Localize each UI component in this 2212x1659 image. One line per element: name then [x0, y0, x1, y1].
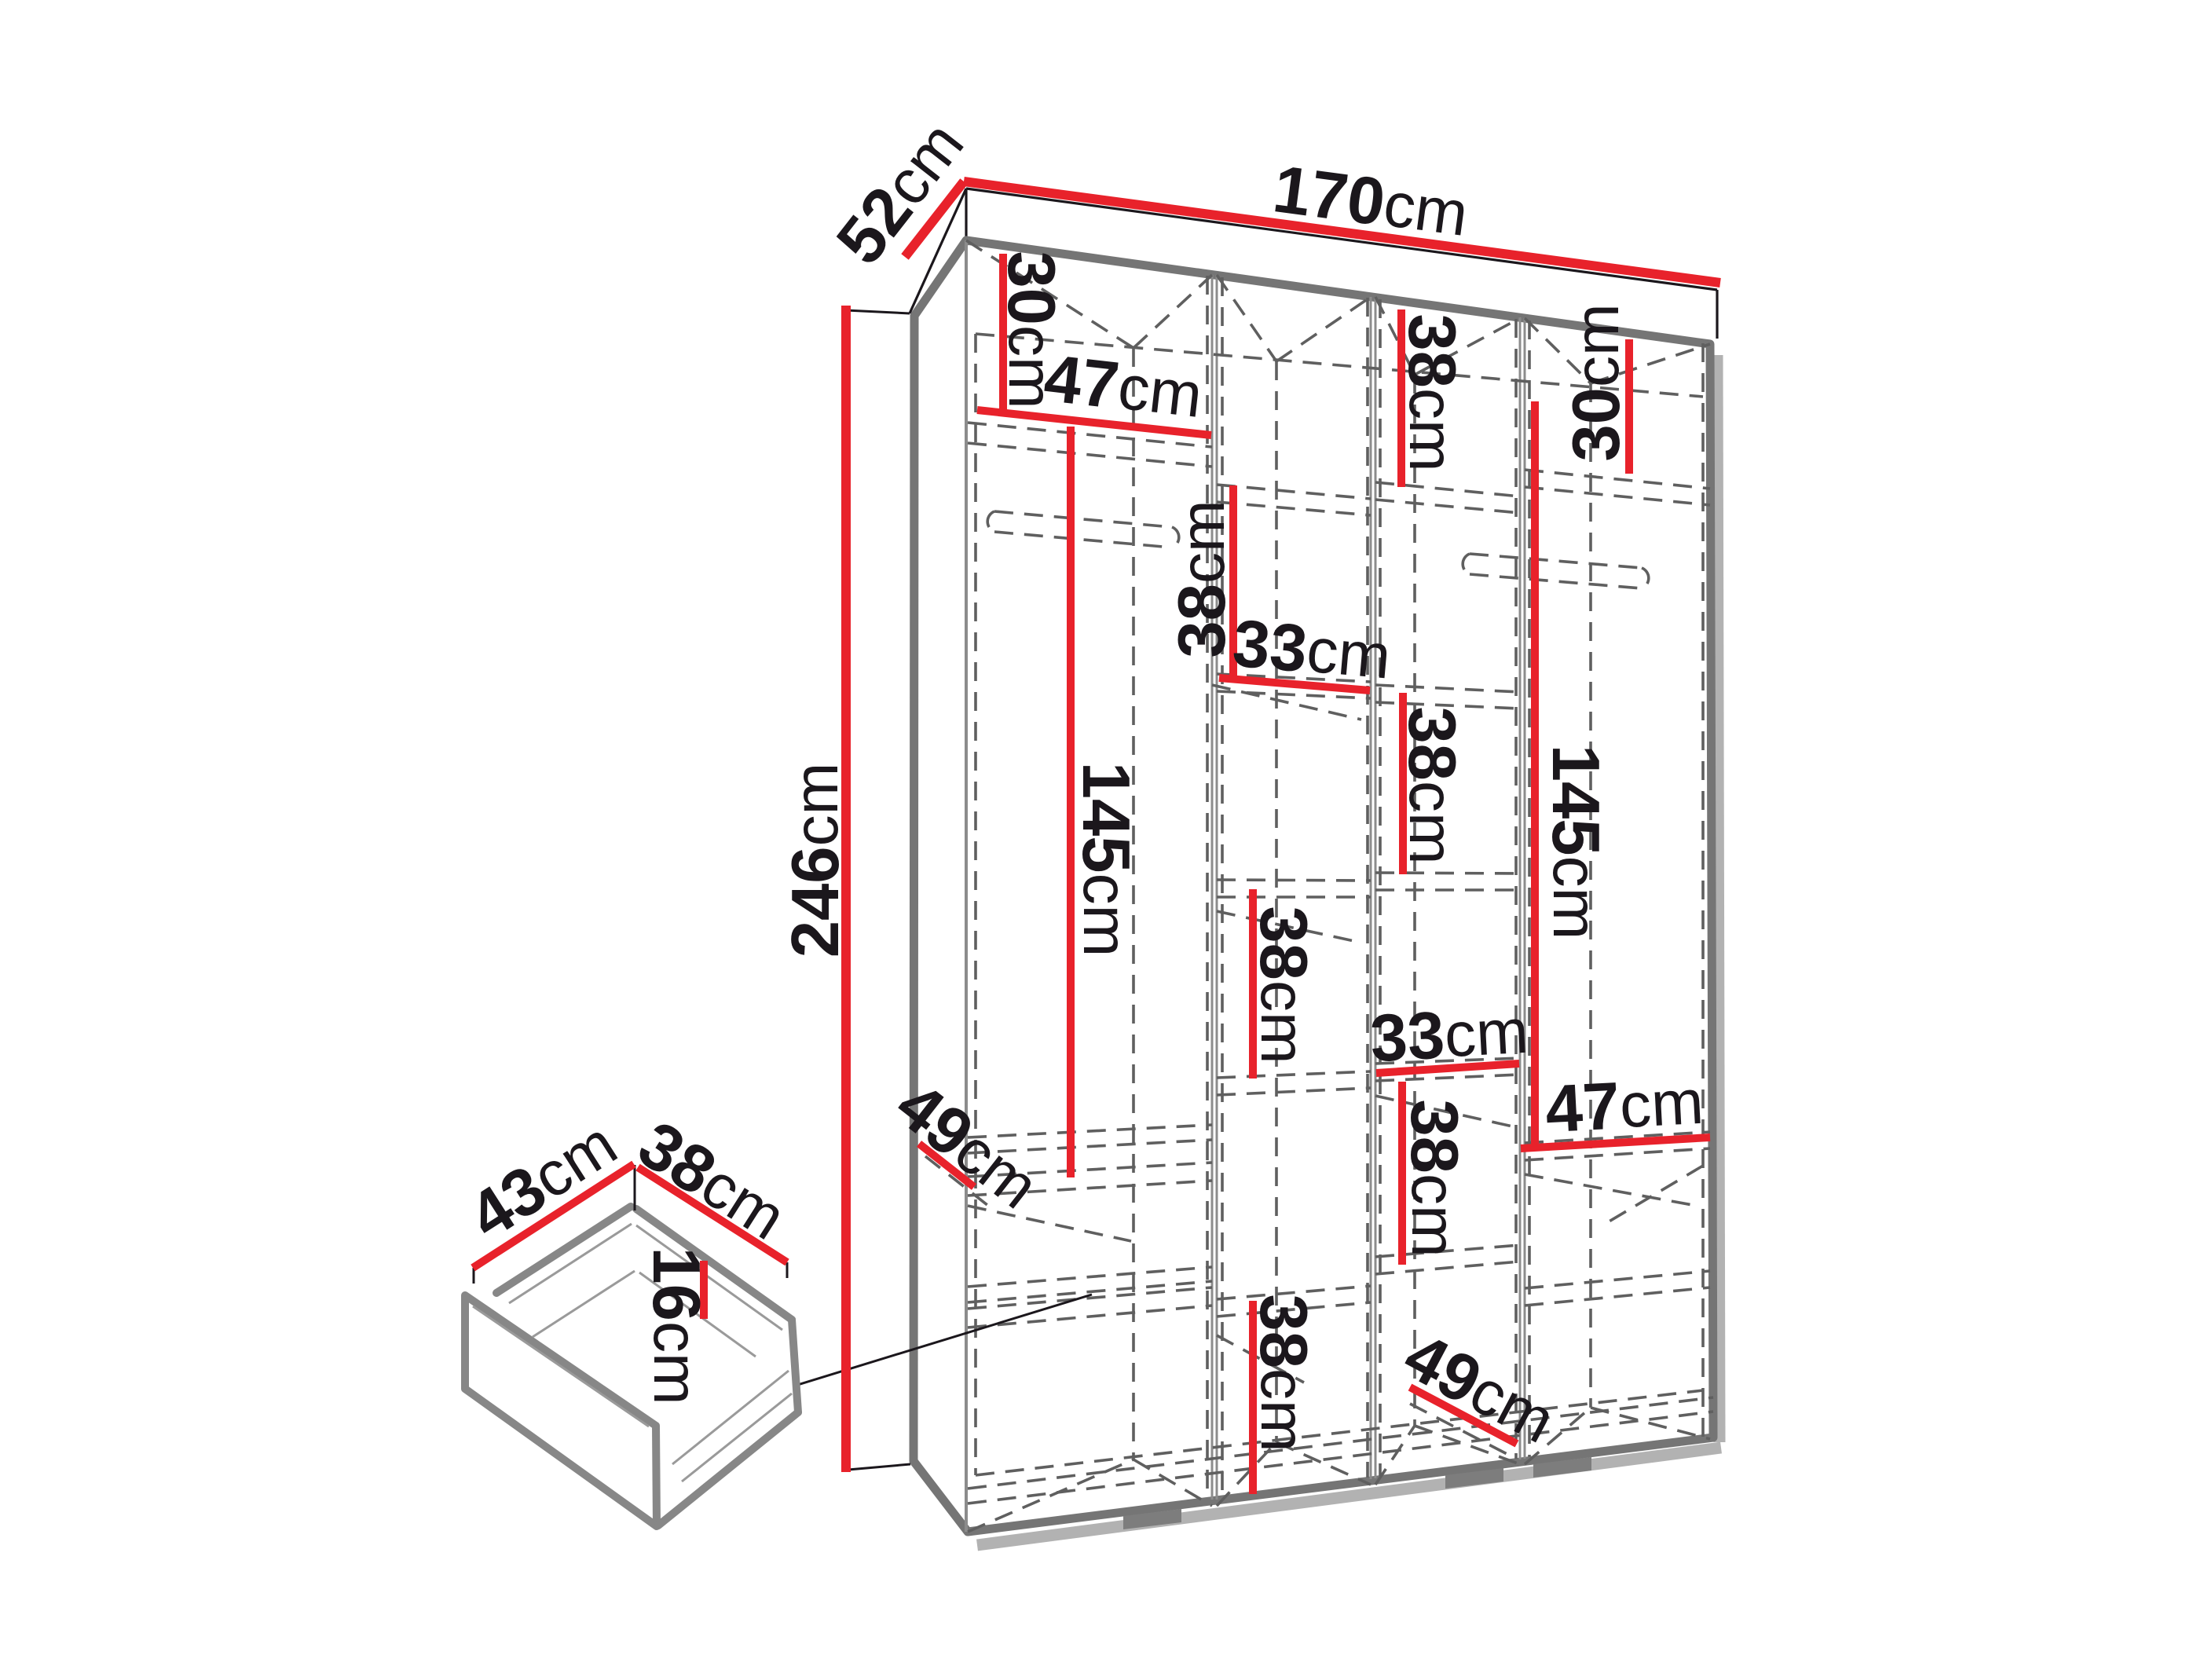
svg-text:38cm: 38cm [1247, 906, 1321, 1064]
svg-text:145cm: 145cm [1069, 762, 1144, 957]
svg-text:38cm: 38cm [1397, 1099, 1472, 1257]
svg-text:38cm: 38cm [1395, 706, 1470, 864]
svg-text:30cm: 30cm [1559, 303, 1634, 461]
svg-text:43cm: 43cm [456, 1106, 630, 1254]
svg-text:38cm: 38cm [1165, 500, 1240, 657]
svg-text:38cm: 38cm [626, 1107, 800, 1254]
svg-text:33cm: 33cm [1230, 606, 1394, 694]
svg-text:145cm: 145cm [1539, 745, 1613, 939]
svg-text:246cm: 246cm [778, 763, 853, 958]
svg-text:16cm: 16cm [639, 1247, 714, 1404]
svg-text:49cm: 49cm [1393, 1318, 1567, 1458]
svg-text:47cm: 47cm [1544, 1064, 1705, 1146]
svg-text:33cm: 33cm [1368, 993, 1530, 1075]
svg-text:38cm: 38cm [1395, 313, 1470, 471]
svg-text:38cm: 38cm [1247, 1294, 1321, 1452]
